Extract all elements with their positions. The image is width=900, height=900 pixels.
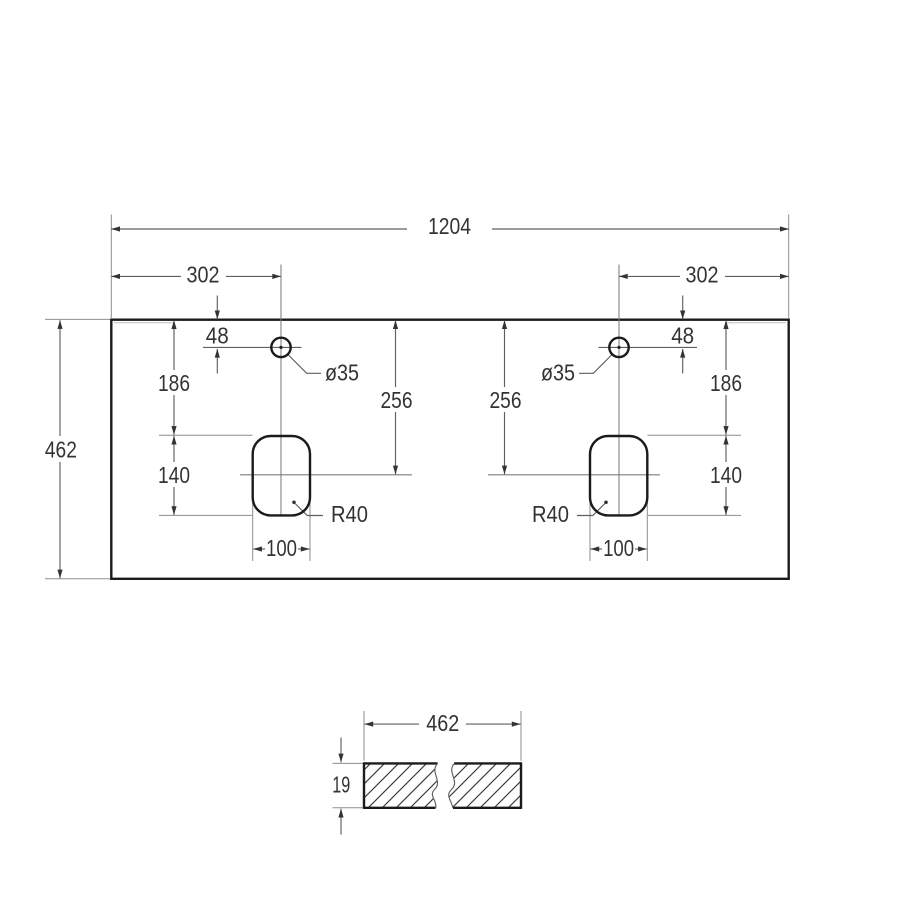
svg-text:302: 302 bbox=[686, 261, 719, 287]
svg-text:19: 19 bbox=[332, 771, 350, 797]
svg-text:186: 186 bbox=[158, 370, 190, 396]
svg-text:1204: 1204 bbox=[428, 213, 471, 239]
svg-text:140: 140 bbox=[710, 462, 742, 488]
svg-text:100: 100 bbox=[266, 535, 297, 561]
svg-text:462: 462 bbox=[426, 710, 459, 736]
svg-text:R40: R40 bbox=[331, 501, 368, 527]
svg-text:ø35: ø35 bbox=[325, 359, 359, 385]
svg-text:140: 140 bbox=[158, 462, 190, 488]
svg-text:48: 48 bbox=[206, 323, 229, 349]
svg-text:48: 48 bbox=[671, 323, 694, 349]
svg-text:ø35: ø35 bbox=[541, 359, 575, 385]
svg-text:462: 462 bbox=[45, 436, 77, 462]
svg-text:256: 256 bbox=[490, 387, 522, 413]
svg-text:256: 256 bbox=[381, 387, 413, 413]
svg-text:186: 186 bbox=[710, 370, 742, 396]
svg-text:302: 302 bbox=[187, 261, 220, 287]
svg-text:R40: R40 bbox=[532, 501, 569, 527]
svg-text:100: 100 bbox=[603, 535, 634, 561]
